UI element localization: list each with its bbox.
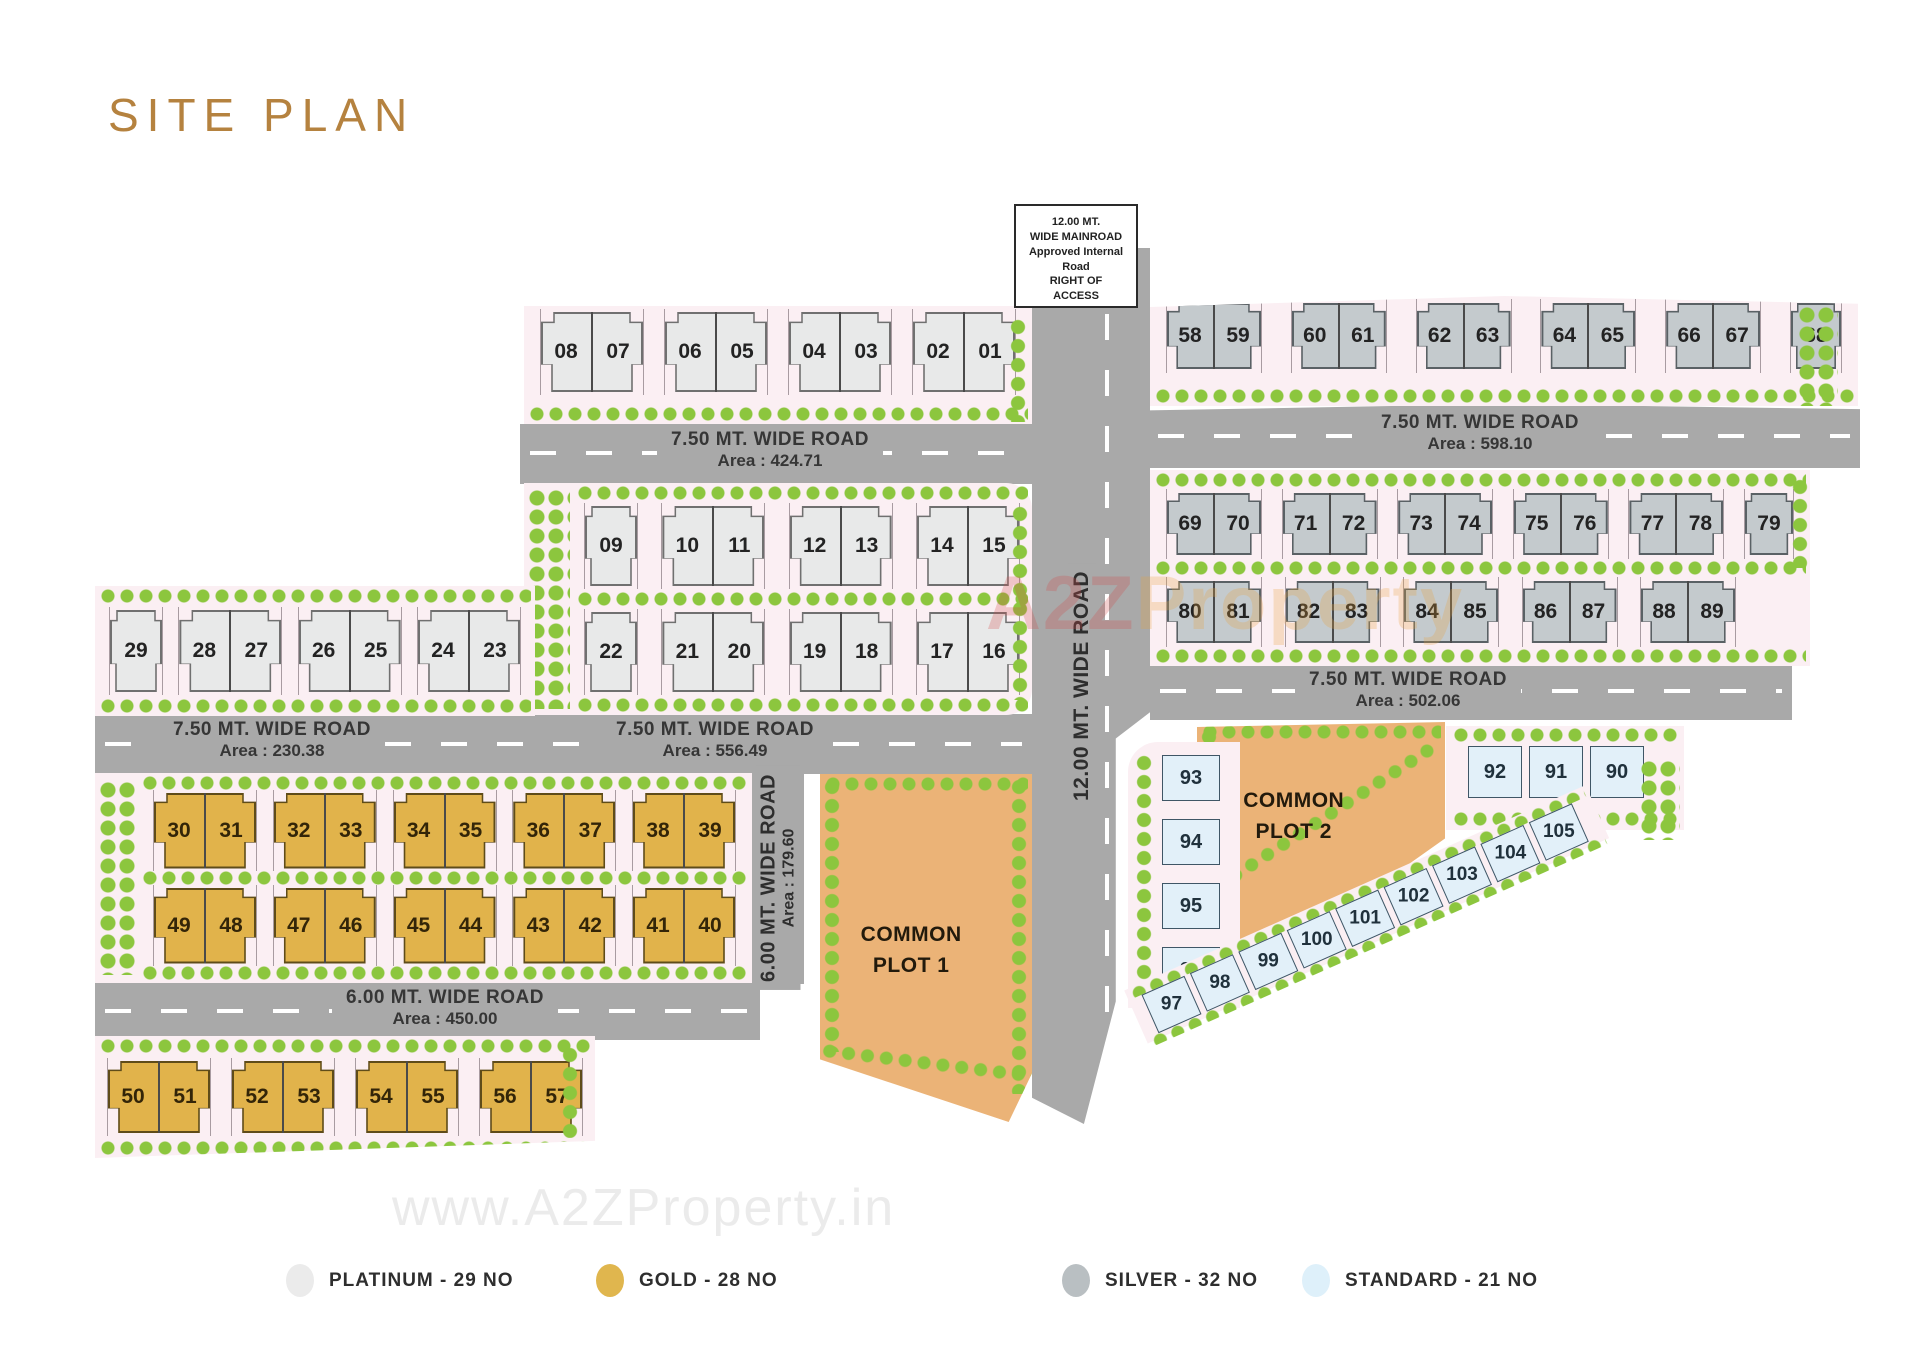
bush-row — [141, 871, 748, 885]
plot-building: 90 — [1590, 746, 1644, 798]
plot-number: 03 — [841, 312, 891, 392]
plot-number: 64 — [1541, 303, 1587, 369]
plot-lot: 38 39 — [632, 790, 736, 871]
plot-lot: 28 27 — [178, 607, 282, 695]
plot-number: 86 — [1523, 581, 1569, 643]
bush-row — [1154, 473, 1806, 487]
bush-row — [99, 1141, 591, 1155]
plot-lot: 04 03 — [788, 309, 892, 395]
plot-lot: 21 20 — [661, 609, 765, 695]
plot-building: 92 — [1468, 746, 1522, 798]
page-title: SITE PLAN — [108, 88, 415, 142]
plot-row: 09 10 11 12 — [576, 503, 1028, 589]
plot-building: 54 55 — [356, 1061, 458, 1133]
plot-number: 60 — [1292, 303, 1338, 369]
plot-number: 54 — [356, 1061, 406, 1133]
plot-number: 71 — [1283, 493, 1329, 555]
plot-lot: 69 70 — [1166, 489, 1262, 559]
plot-number: 76 — [1562, 493, 1608, 555]
plot-row: 80 81 82 83 84 — [1154, 577, 1748, 647]
plot-building: 73 74 — [1398, 493, 1492, 555]
bush-row — [1154, 561, 1806, 575]
bush-column — [562, 1046, 579, 1138]
plot-number: 94 — [1163, 820, 1219, 864]
plot-number: 77 — [1629, 493, 1675, 555]
plot-lot: 52 53 — [231, 1058, 335, 1136]
bush-column — [1011, 778, 1028, 1094]
cluster-gold-bottom: 50 51 52 53 54 — [95, 1036, 595, 1158]
plot-lot: 14 15 — [916, 503, 1020, 589]
plot-lot: 47 46 — [273, 885, 377, 966]
legend-swatch-silver — [1062, 1264, 1090, 1297]
plot-number: 13 — [842, 506, 892, 586]
plot-number: 07 — [593, 312, 643, 392]
legend-item-silver: SILVER - 32 NO — [1062, 1264, 1258, 1297]
plot-number: 105 — [1536, 812, 1581, 852]
plot-building: 75 76 — [1514, 493, 1608, 555]
plot-number: 27 — [231, 610, 281, 692]
plot-building: 32 33 — [274, 793, 376, 869]
cluster-silver-middle: 69 70 71 72 73 — [1150, 470, 1810, 666]
plot-lot: 73 74 — [1397, 489, 1493, 559]
plot-number: 84 — [1404, 581, 1450, 643]
plot-lot: 58 59 — [1166, 299, 1262, 373]
cluster-gold-main: 30 31 32 33 34 — [95, 773, 752, 983]
plot-number: 98 — [1197, 963, 1242, 1003]
plot-number: 92 — [1469, 747, 1521, 797]
plot-row: 69 70 71 72 73 — [1154, 489, 1806, 559]
plot-number: 79 — [1745, 493, 1793, 555]
plot-lot: 41 40 — [632, 885, 736, 966]
bush-column — [824, 778, 841, 1052]
plot-lot: 02 01 — [912, 309, 1016, 395]
plot-building: 84 85 — [1404, 581, 1498, 643]
cluster-silver-top: 58 59 60 61 62 — [1150, 296, 1858, 406]
plot-lot: 17 16 — [916, 609, 1020, 695]
road-middle-right: 7.50 MT. WIDE ROAD Area : 502.06 — [1150, 664, 1792, 720]
road-label: 7.50 MT. WIDE ROAD Area : 424.71 — [657, 429, 883, 471]
plot-lot: 60 61 — [1291, 299, 1387, 373]
road-label: 7.50 MT. WIDE ROAD Area : 230.38 — [159, 719, 385, 761]
bush-column — [1136, 754, 1153, 996]
plot-row: 30 31 32 33 34 — [141, 790, 748, 871]
bush-row — [1452, 728, 1678, 742]
plot-lot: 24 23 — [417, 607, 521, 695]
road-label: 7.50 MT. WIDE ROAD Area : 598.10 — [1367, 412, 1593, 454]
plot-number: 23 — [470, 610, 520, 692]
plot-number: 22 — [585, 612, 637, 692]
plot-number: 78 — [1677, 493, 1723, 555]
road-label: 6.00 MT. WIDE ROAD Area : 179.60 — [756, 766, 801, 990]
plot-building: 17 16 — [917, 612, 1019, 692]
plot-building: 24 23 — [418, 610, 520, 692]
cluster-platinum-middle: 09 10 11 12 — [524, 483, 1032, 715]
bush-column — [1792, 478, 1809, 568]
plot-number: 26 — [299, 610, 349, 692]
plot-number: 70 — [1215, 493, 1261, 555]
plot-number: 40 — [685, 888, 735, 964]
plot-row: 49 48 47 46 45 — [141, 885, 748, 966]
plot-number: 50 — [108, 1061, 158, 1133]
plot-lot: 93 — [1162, 751, 1220, 805]
plot-number: 02 — [913, 312, 963, 392]
plot-lot: 64 65 — [1540, 299, 1636, 373]
plot-building: 22 — [585, 612, 637, 692]
bush-row — [528, 407, 1028, 421]
plot-number: 06 — [665, 312, 715, 392]
plot-lot: 50 51 — [107, 1058, 211, 1136]
plot-number: 80 — [1167, 581, 1213, 643]
plot-number: 89 — [1689, 581, 1735, 643]
plot-lot: 26 25 — [298, 607, 402, 695]
plot-number: 39 — [685, 793, 735, 869]
bush-row — [824, 777, 1028, 791]
plot-lot: 71 72 — [1282, 489, 1378, 559]
plot-building: 26 25 — [299, 610, 401, 692]
plot-lot: 94 — [1162, 815, 1220, 869]
plot-row: 50 51 52 53 54 — [99, 1058, 591, 1136]
plot-number: 59 — [1215, 303, 1261, 369]
road-label: 6.00 MT. WIDE ROAD Area : 450.00 — [332, 987, 558, 1029]
plot-building: 12 13 — [790, 506, 892, 586]
plot-number: 29 — [110, 610, 162, 692]
bush-row — [1201, 725, 1441, 739]
common-plot-1: COMMON PLOT 1 — [820, 774, 1032, 1122]
legend-swatch-gold — [596, 1264, 624, 1297]
road-centerline — [1105, 258, 1109, 1071]
plot-number: 17 — [917, 612, 967, 692]
road-label: 12.00 MT. WIDE ROAD — [1068, 563, 1096, 809]
plot-number: 42 — [565, 888, 615, 964]
plot-number: 34 — [394, 793, 444, 869]
plot-lot: 22 — [584, 609, 638, 695]
plot-lot: 32 33 — [273, 790, 377, 871]
plot-number: 01 — [965, 312, 1015, 392]
mainroad-access-note: 12.00 MT. WIDE MAINROAD Approved Interna… — [1014, 204, 1138, 308]
plot-building: 41 40 — [633, 888, 735, 964]
plot-lot: 34 35 — [393, 790, 497, 871]
plot-number: 49 — [154, 888, 204, 964]
plot-number: 19 — [790, 612, 840, 692]
plot-number: 62 — [1417, 303, 1463, 369]
plot-row: 58 59 60 61 62 — [1154, 299, 1854, 373]
plot-building: 66 67 — [1666, 303, 1760, 369]
plot-building: 86 87 — [1523, 581, 1617, 643]
plot-building: 49 48 — [154, 888, 256, 964]
plot-building: 69 70 — [1167, 493, 1261, 555]
plot-number: 101 — [1343, 898, 1388, 938]
common-plot-label: COMMON PLOT 1 — [820, 920, 1002, 981]
plot-building: 34 35 — [394, 793, 496, 869]
legend-swatch-platinum — [286, 1264, 314, 1297]
cluster-platinum-top: 08 07 06 05 04 — [524, 306, 1032, 424]
plot-number: 82 — [1286, 581, 1332, 643]
plot-number: 90 — [1591, 747, 1643, 797]
plot-number: 46 — [326, 888, 376, 964]
plot-number: 45 — [394, 888, 444, 964]
plot-building: 88 89 — [1641, 581, 1735, 643]
plot-building: 19 18 — [790, 612, 892, 692]
bush-patch — [1640, 760, 1680, 840]
watermark-bottom: www.A2ZProperty.in — [392, 1178, 895, 1238]
plot-number: 11 — [714, 506, 764, 586]
plot-lot: 86 87 — [1522, 577, 1618, 647]
plot-building: 30 31 — [154, 793, 256, 869]
legend-item-gold: GOLD - 28 NO — [596, 1264, 778, 1297]
plot-lot: 77 78 — [1628, 489, 1724, 559]
plot-number: 61 — [1340, 303, 1386, 369]
plot-building: 04 03 — [789, 312, 891, 392]
plot-number: 47 — [274, 888, 324, 964]
plot-number: 20 — [714, 612, 764, 692]
plot-building: 58 59 — [1167, 303, 1261, 369]
plot-number: 52 — [232, 1061, 282, 1133]
plot-number: 38 — [633, 793, 683, 869]
plot-building: 29 — [110, 610, 162, 692]
bush-row — [99, 589, 531, 603]
plot-building: 21 20 — [662, 612, 764, 692]
plot-number: 43 — [513, 888, 563, 964]
bush-row — [141, 776, 748, 790]
plot-number: 103 — [1439, 855, 1484, 895]
plot-number: 83 — [1334, 581, 1380, 643]
plot-number: 10 — [662, 506, 712, 586]
plot-number: 33 — [326, 793, 376, 869]
plot-lot: 54 55 — [355, 1058, 459, 1136]
plot-number: 28 — [179, 610, 229, 692]
bush-patch — [1798, 306, 1838, 406]
plot-number: 95 — [1163, 884, 1219, 928]
plot-number: 72 — [1331, 493, 1377, 555]
plot-building: 36 37 — [513, 793, 615, 869]
plot-row: 08 07 06 05 04 — [528, 309, 1028, 395]
plot-number: 75 — [1514, 493, 1560, 555]
plot-building: 79 — [1745, 493, 1793, 555]
plot-number: 24 — [418, 610, 468, 692]
plot-lot: 29 — [109, 607, 163, 695]
plot-building: 45 44 — [394, 888, 496, 964]
legend-item-platinum: PLATINUM - 29 NO — [286, 1264, 514, 1297]
plot-building: 71 72 — [1283, 493, 1377, 555]
plot-building: 50 51 — [108, 1061, 210, 1133]
road-label: 7.50 MT. WIDE ROAD Area : 502.06 — [1295, 669, 1521, 711]
plot-number: 12 — [790, 506, 840, 586]
plot-number: 44 — [446, 888, 496, 964]
plot-number: 35 — [446, 793, 496, 869]
plot-number: 104 — [1488, 834, 1533, 874]
plot-lot: 92 — [1468, 745, 1522, 799]
plot-number: 04 — [789, 312, 839, 392]
plot-lot: 80 81 — [1166, 577, 1262, 647]
bush-row — [576, 486, 1028, 500]
plot-lot: 09 — [584, 503, 638, 589]
plot-number: 08 — [541, 312, 591, 392]
plot-number: 14 — [917, 506, 967, 586]
plot-building: 94 — [1162, 819, 1220, 865]
bush-row — [1154, 389, 1854, 403]
plot-lot: 95 — [1162, 879, 1220, 933]
plot-number: 99 — [1246, 941, 1291, 981]
plot-number: 36 — [513, 793, 563, 869]
plot-building: 82 83 — [1286, 581, 1380, 643]
plot-number: 74 — [1446, 493, 1492, 555]
plot-building: 09 — [585, 506, 637, 586]
bush-column — [99, 781, 135, 975]
plot-number: 05 — [717, 312, 767, 392]
plot-row: 22 21 20 19 — [576, 609, 1028, 695]
plot-building: 77 78 — [1629, 493, 1723, 555]
plot-number: 55 — [408, 1061, 458, 1133]
cluster-platinum-left: 29 28 27 26 — [95, 586, 535, 716]
plot-building: 14 15 — [917, 506, 1019, 586]
plot-building: 43 42 — [513, 888, 615, 964]
plot-building: 47 46 — [274, 888, 376, 964]
plot-number: 97 — [1149, 984, 1194, 1024]
plot-number: 87 — [1571, 581, 1617, 643]
plot-number: 09 — [585, 506, 637, 586]
plot-building: 02 01 — [913, 312, 1015, 392]
bush-row — [99, 1039, 591, 1053]
plot-number: 56 — [480, 1061, 530, 1133]
plot-lot: 84 85 — [1403, 577, 1499, 647]
plot-lot: 30 31 — [153, 790, 257, 871]
plot-number: 88 — [1641, 581, 1687, 643]
legend-item-standard: STANDARD - 21 NO — [1302, 1264, 1538, 1297]
road-middle-left: 7.50 MT. WIDE ROAD Area : 230.38 7.50 MT… — [95, 714, 1032, 774]
site-plan-canvas: SITE PLAN 7.50 MT. WIDE ROAD Area : 424.… — [0, 0, 1920, 1357]
plot-lot: 06 05 — [664, 309, 768, 395]
plot-building: 95 — [1162, 883, 1220, 929]
plot-number: 58 — [1167, 303, 1213, 369]
plot-building: 93 — [1162, 755, 1220, 801]
plot-number: 63 — [1465, 303, 1511, 369]
road-vertical-6m: 6.00 MT. WIDE ROAD Area : 179.60 — [752, 772, 804, 984]
plot-lot: 88 89 — [1640, 577, 1736, 647]
plot-number: 37 — [565, 793, 615, 869]
road-top-left: 7.50 MT. WIDE ROAD Area : 424.71 — [520, 424, 1032, 484]
plot-number: 73 — [1398, 493, 1444, 555]
plot-lot: 66 67 — [1665, 299, 1761, 373]
plot-number: 30 — [154, 793, 204, 869]
plot-number: 69 — [1167, 493, 1213, 555]
plot-building: 64 65 — [1541, 303, 1635, 369]
plot-lot: 90 — [1590, 745, 1644, 799]
bush-row — [576, 592, 1028, 606]
plot-number: 31 — [206, 793, 256, 869]
plot-building: 60 61 — [1292, 303, 1386, 369]
road-bottom: 6.00 MT. WIDE ROAD Area : 450.00 — [95, 982, 760, 1040]
plot-lot: 45 44 — [393, 885, 497, 966]
plot-lot: 75 76 — [1513, 489, 1609, 559]
plot-building: 38 39 — [633, 793, 735, 869]
plot-lot: 43 42 — [512, 885, 616, 966]
plot-lot: 08 07 — [540, 309, 644, 395]
plot-number: 81 — [1215, 581, 1261, 643]
plot-number: 41 — [633, 888, 683, 964]
plot-row: 29 28 27 26 — [99, 607, 531, 695]
plot-building: 06 05 — [665, 312, 767, 392]
bush-row — [820, 1043, 1032, 1083]
plot-number: 85 — [1452, 581, 1498, 643]
plot-lot: 79 — [1744, 489, 1794, 559]
plot-number: 65 — [1589, 303, 1635, 369]
plot-building: 10 11 — [662, 506, 764, 586]
plot-number: 25 — [351, 610, 401, 692]
bush-column — [1012, 505, 1029, 700]
plot-lot: 62 63 — [1416, 299, 1512, 373]
legend-swatch-standard — [1302, 1264, 1330, 1297]
plot-lot: 12 13 — [789, 503, 893, 589]
plot-number: 21 — [662, 612, 712, 692]
plot-number: 100 — [1294, 920, 1339, 960]
plot-number: 66 — [1666, 303, 1712, 369]
plot-lot: 82 83 — [1285, 577, 1381, 647]
plot-lot: 10 11 — [661, 503, 765, 589]
plot-number: 48 — [206, 888, 256, 964]
plot-number: 67 — [1714, 303, 1760, 369]
plot-building: 28 27 — [179, 610, 281, 692]
plot-building: 80 81 — [1167, 581, 1261, 643]
plot-number: 32 — [274, 793, 324, 869]
bush-row — [141, 966, 748, 980]
plot-building: 62 63 — [1417, 303, 1511, 369]
road-label: 7.50 MT. WIDE ROAD Area : 556.49 — [602, 719, 828, 761]
bush-row — [1154, 649, 1806, 663]
bush-row — [576, 698, 1028, 712]
plot-number: 18 — [842, 612, 892, 692]
plot-number: 93 — [1163, 756, 1219, 800]
plot-number: 53 — [284, 1061, 334, 1133]
plot-building: 52 53 — [232, 1061, 334, 1133]
plot-lot: 49 48 — [153, 885, 257, 966]
plot-lot: 19 18 — [789, 609, 893, 695]
plot-building: 08 07 — [541, 312, 643, 392]
plot-number: 102 — [1391, 877, 1436, 917]
road-top-right: 7.50 MT. WIDE ROAD Area : 598.10 — [1148, 404, 1860, 468]
bush-row — [99, 699, 531, 713]
plot-number: 51 — [160, 1061, 210, 1133]
bush-column — [1010, 318, 1027, 422]
plot-lot: 36 37 — [512, 790, 616, 871]
